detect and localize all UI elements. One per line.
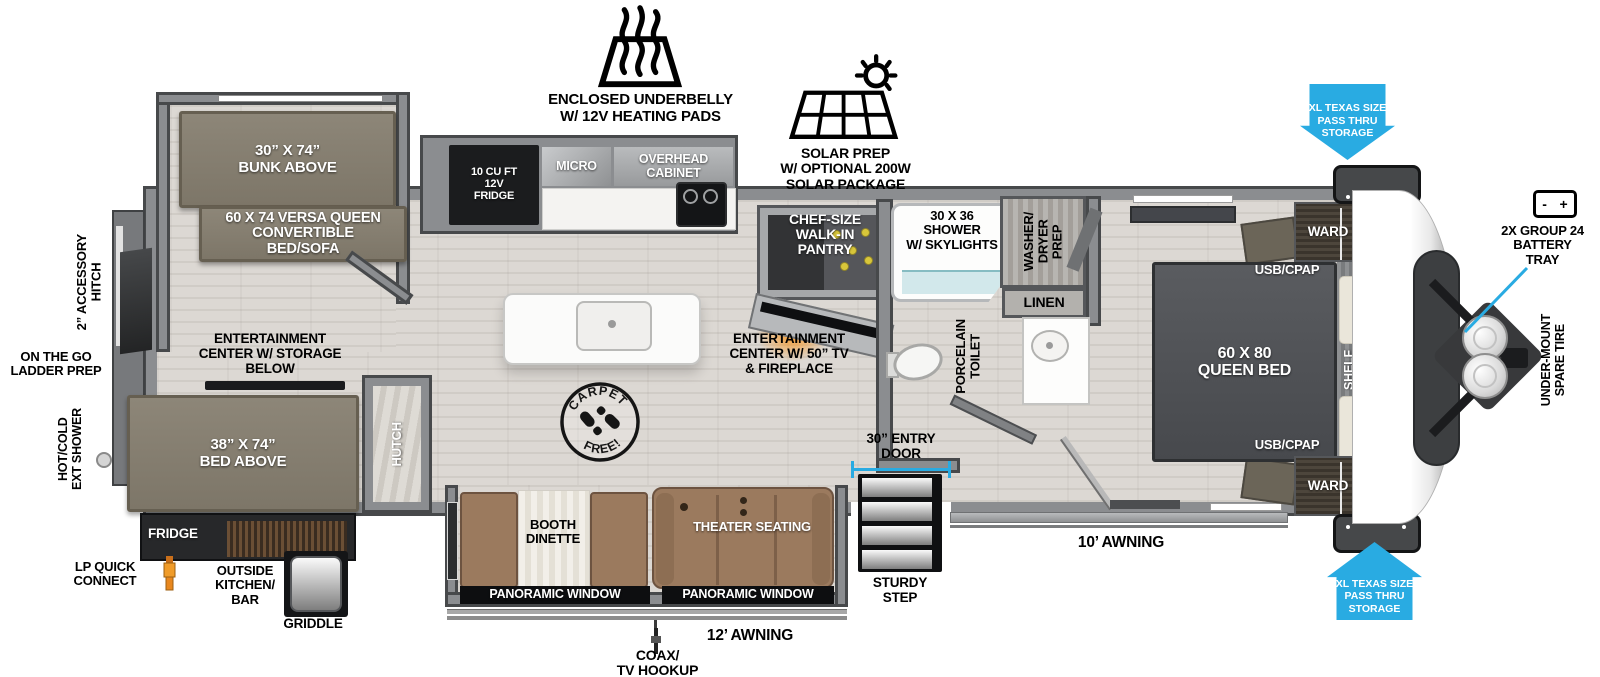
pass-thru-bottom-label: XL TEXAS SIZE PASS THRU STORAGE — [1327, 578, 1422, 615]
versa-queen-label: 60 X 74 VERSA QUEEN CONVERTIBLE BED/SOFA — [202, 211, 404, 258]
panoramic-window-1: PANORAMIC WINDOW — [460, 586, 650, 604]
dinette-slide-window — [447, 502, 458, 580]
dinette-slide-right-wall — [835, 485, 848, 607]
step-tread — [862, 526, 932, 545]
coax-label: COAX/ TV HOOKUP — [595, 648, 720, 677]
versa-queen-sofa: 60 X 74 VERSA QUEEN CONVERTIBLE BED/SOFA — [199, 206, 407, 262]
sturdy-step-icon — [858, 474, 942, 572]
entry-door-measure-tick — [851, 461, 854, 478]
rear-ent-center-cabinet — [205, 381, 345, 390]
awning-12-rail — [447, 616, 847, 620]
entry-door-measure-line — [851, 468, 951, 471]
panoramic-window-1-label: PANORAMIC WINDOW — [489, 588, 620, 602]
battery-callout-line — [1455, 266, 1530, 336]
bunk-slide-right-wall — [396, 92, 410, 304]
cooktop — [676, 182, 727, 227]
overhead-cabinet-label: OVERHEAD CABINET — [639, 153, 708, 180]
panoramic-window-2-label: PANORAMIC WINDOW — [682, 588, 813, 602]
ent-center-50tv-label: ENTERTAINMENT CENTER W/ 50” TV & FIREPLA… — [690, 332, 888, 377]
battery-tray-label: 2X GROUP 24 BATTERY TRAY — [1485, 224, 1600, 267]
latch-dot — [1346, 195, 1350, 199]
bedroom-top-cabin — [1130, 206, 1236, 223]
awning-arm-foot — [1110, 500, 1180, 509]
pantry-food-icon — [864, 256, 873, 265]
awning-10-edge — [950, 525, 1288, 528]
theater-seating — [652, 487, 834, 589]
ext-shower-knob-icon — [96, 452, 112, 468]
bunk-slide-left-wall — [156, 92, 170, 352]
awning-12-label: 12’ AWNING — [688, 627, 812, 644]
pantry-food-icon — [840, 262, 849, 271]
bedroom-top-window — [1133, 195, 1233, 203]
theater-seating-label: THEATER SEATING — [672, 520, 832, 534]
ladder-prep-label: ON THE GO LADDER PREP — [0, 350, 112, 379]
underbelly-label: ENCLOSED UNDERBELLY W/ 12V HEATING PADS — [528, 92, 753, 125]
outside-fridge-label: FRIDGE — [148, 527, 212, 542]
island-faucet-icon — [608, 320, 616, 328]
toilet-label-wrap: PORCELAIN TOILET — [948, 304, 988, 408]
bed-38x74-label: 38” X 74” BED ABOVE — [200, 437, 287, 469]
pass-thru-arrow-top: XL TEXAS SIZE PASS THRU STORAGE — [1300, 84, 1395, 160]
overhead-cabinet: OVERHEAD CABINET — [614, 147, 733, 186]
usb-cpap-bottom-label: USB/CPAP — [1233, 438, 1341, 452]
rear-ent-center-label: ENTERTAINMENT CENTER W/ STORAGE BELOW — [190, 332, 350, 377]
shower-glass — [902, 270, 1002, 294]
bunk-bed: 30” X 74” BUNK ABOVE — [179, 111, 396, 208]
kitchen-fridge-label: 10 CU FT 12V FRIDGE — [471, 167, 517, 203]
awning-10-bar — [950, 512, 1288, 523]
vanity-faucet-icon — [1046, 342, 1053, 349]
spare-tire-label: UNDER-MOUNT SPARE TIRE — [1540, 314, 1568, 406]
theater-seam — [716, 495, 719, 585]
awning-12-rail — [447, 609, 847, 614]
washer-dryer-label: WASHER/ DRYER PREP — [1022, 212, 1065, 271]
entry-door-label: 30” ENTRY DOOR — [851, 432, 951, 462]
tank-ring — [1473, 364, 1497, 388]
queen-bed-label: 60 X 80 QUEEN BED — [1198, 345, 1291, 380]
rear-wall-tv — [120, 248, 152, 354]
hutch: HUTCH — [362, 375, 432, 513]
step-tread — [862, 550, 932, 569]
spare-tire-label-wrap: UNDER-MOUNT SPARE TIRE — [1536, 290, 1572, 430]
battery-icon: - + — [1533, 190, 1577, 218]
latch-dot — [1402, 525, 1406, 529]
solar-prep-icon — [788, 52, 903, 144]
ext-shower-label: HOT/COLD EXT SHOWER — [57, 408, 85, 490]
nightstand — [1240, 216, 1299, 265]
step-tread — [862, 478, 932, 497]
wardrobe-top-label: WARD — [1308, 225, 1348, 240]
pass-thru-top-label: XL TEXAS SIZE PASS THRU STORAGE — [1309, 102, 1386, 139]
griddle-label: GRIDDLE — [272, 617, 354, 632]
accessory-hitch-label-wrap: 2” ACCESSORY HITCH — [70, 210, 108, 355]
hutch-label: HUTCH — [390, 422, 404, 467]
pantry-label: CHEF-SIZE WALK-IN PANTRY — [757, 212, 893, 257]
latch-dot — [1346, 525, 1350, 529]
battery-plus: + — [1560, 196, 1568, 212]
ext-shower-label-wrap: HOT/COLD EXT SHOWER — [52, 384, 90, 514]
microwave: MICRO — [542, 147, 611, 186]
washer-dryer-prep: WASHER/ DRYER PREP — [1000, 196, 1086, 288]
shower-label: 30 X 36 SHOWER W/ SKYLIGHTS — [891, 209, 1013, 252]
griddle-icon — [290, 556, 342, 612]
lp-quick-connect-label: LP QUICK CONNECT — [52, 560, 158, 589]
solar-prep-label: SOLAR PREP W/ OPTIONAL 200W SOLAR PACKAG… — [748, 146, 943, 192]
accessory-hitch-label: 2” ACCESSORY HITCH — [75, 234, 104, 330]
linen-closet: LINEN — [1002, 288, 1086, 318]
carpet-free-stamp: CARPET FREE! — [554, 376, 646, 468]
sturdy-step-label: STURDY STEP — [852, 576, 948, 606]
step-tread — [862, 502, 932, 521]
theater-seam — [774, 495, 777, 585]
kitchen-fridge: 10 CU FT 12V FRIDGE — [449, 145, 539, 225]
toilet-label: PORCELAIN TOILET — [954, 319, 983, 394]
bedroom-bottom-window — [1210, 503, 1282, 511]
entry-door-measure-tick — [948, 461, 951, 478]
usb-cpap-top-label: USB/CPAP — [1233, 263, 1341, 277]
panoramic-window-2: PANORAMIC WINDOW — [662, 586, 834, 604]
propane-tank-icon — [1462, 353, 1508, 399]
theater-armrest — [812, 493, 830, 585]
theater-armrest — [656, 493, 674, 585]
floorplan-canvas: 30” X 74” BUNK ABOVE 60 X 74 VERSA QUEEN… — [0, 0, 1600, 677]
awning-10-label: 10’ AWNING — [1056, 534, 1186, 551]
lp-quick-connect-icon — [162, 556, 176, 592]
linen-label: LINEN — [1023, 295, 1064, 310]
bed-38x74: 38” X 74” BED ABOVE — [127, 395, 359, 512]
queen-bed: 60 X 80 QUEEN BED — [1152, 262, 1337, 462]
nightstand — [1240, 456, 1299, 505]
booth-dinette-label: BOOTH DINETTE — [503, 518, 603, 547]
cupholder-icon — [740, 497, 747, 504]
microwave-label: MICRO — [556, 160, 597, 174]
bunk-slide-window — [218, 95, 383, 102]
burner-icon — [683, 189, 698, 204]
cupholder-icon — [740, 509, 747, 516]
pass-thru-arrow-bottom: XL TEXAS SIZE PASS THRU STORAGE — [1327, 542, 1422, 620]
bunk-bed-label: 30” X 74” BUNK ABOVE — [238, 143, 336, 175]
cupholder-icon — [680, 503, 688, 511]
outside-kitchen-label: OUTSIDE KITCHEN/ BAR — [198, 564, 292, 607]
underbelly-icon — [586, 2, 694, 90]
wardrobe-bottom-label: WARD — [1308, 479, 1348, 494]
burner-icon — [703, 189, 718, 204]
battery-minus: - — [1542, 196, 1547, 212]
